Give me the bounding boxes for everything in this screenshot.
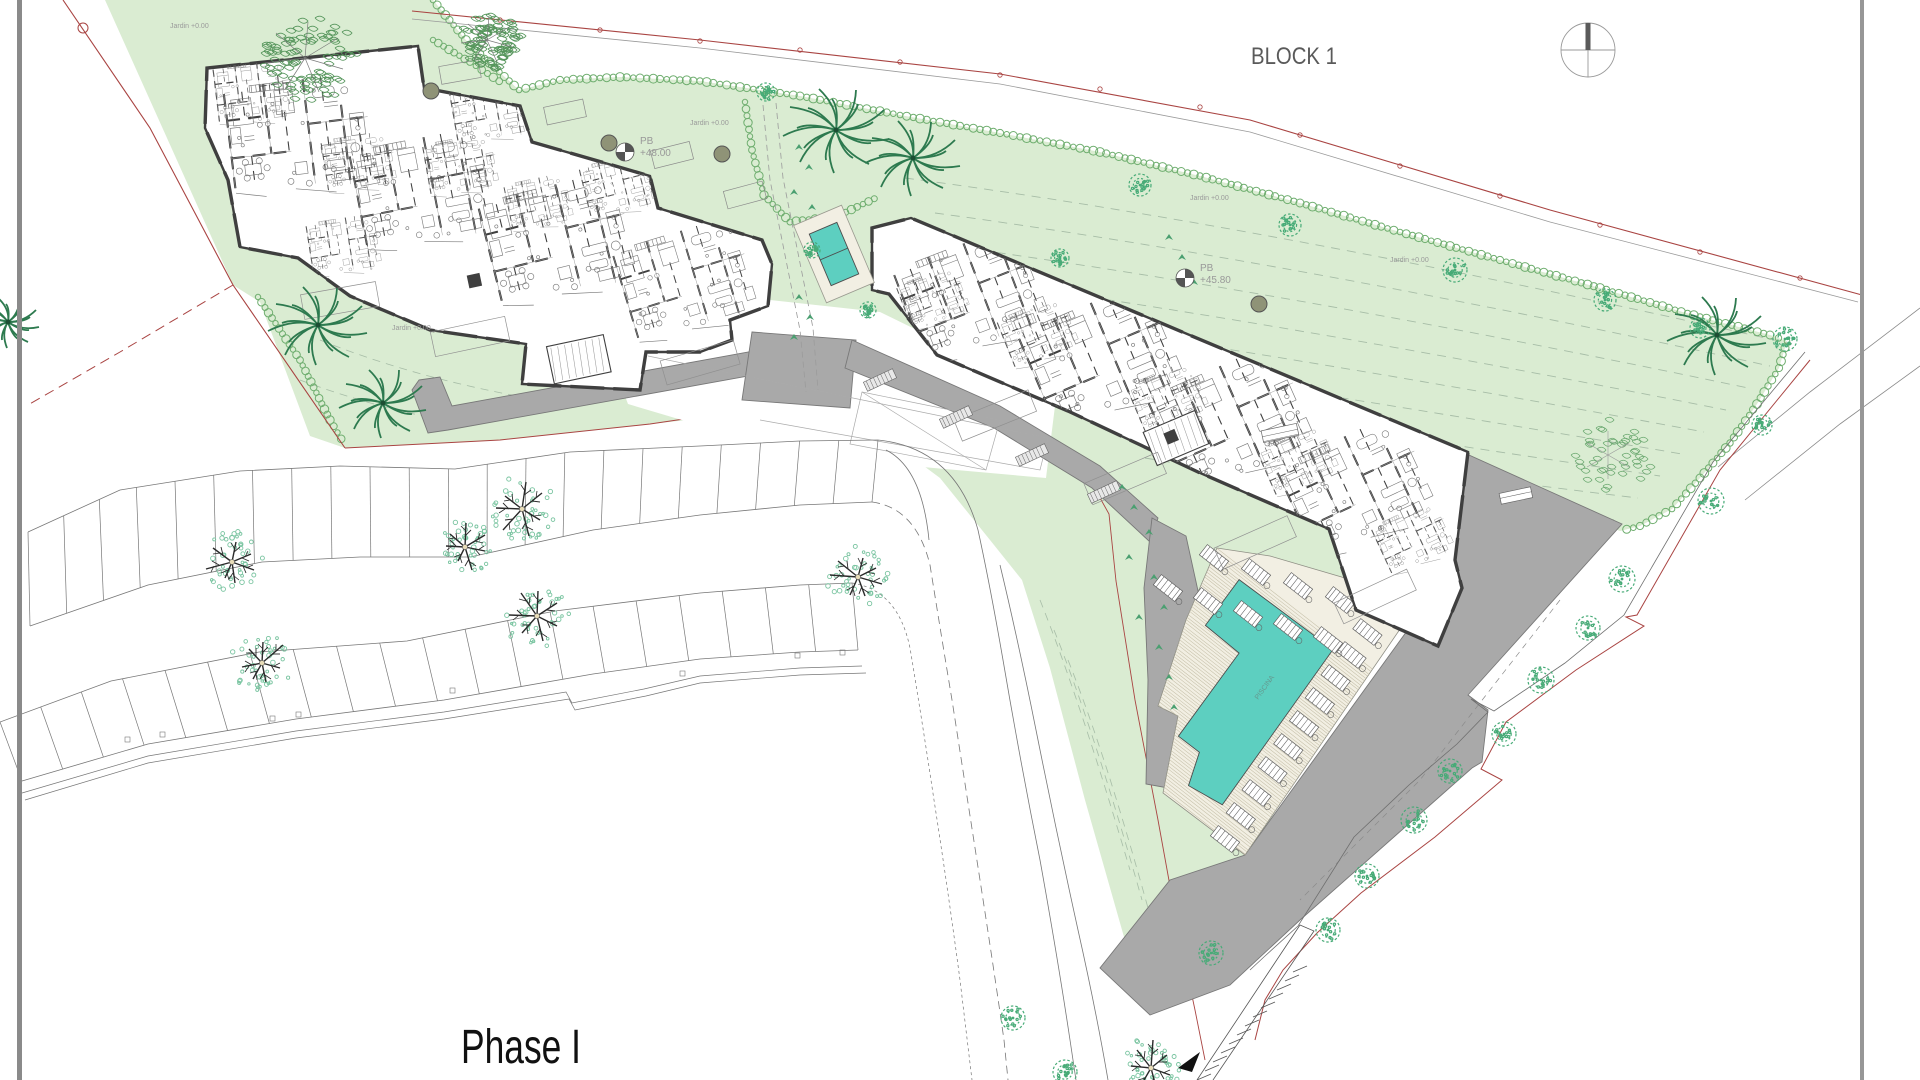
svg-text:Jardin +0.00: Jardin +0.00 [170,23,209,30]
svg-text:Jardin +0.00: Jardin +0.00 [392,325,431,332]
svg-text:Phase I: Phase I [461,1021,581,1074]
svg-text:Jardin +0.00: Jardin +0.00 [1390,257,1429,264]
svg-text:PB: PB [1200,263,1214,274]
svg-text:BLOCK 1: BLOCK 1 [1251,43,1337,70]
svg-text:+45.80: +45.80 [1200,275,1231,286]
svg-text:+48.00: +48.00 [640,148,671,159]
svg-text:PB: PB [640,136,654,147]
svg-text:Jardin +0.00: Jardin +0.00 [690,120,729,127]
svg-text:Jardin +0.00: Jardin +0.00 [1190,195,1229,202]
